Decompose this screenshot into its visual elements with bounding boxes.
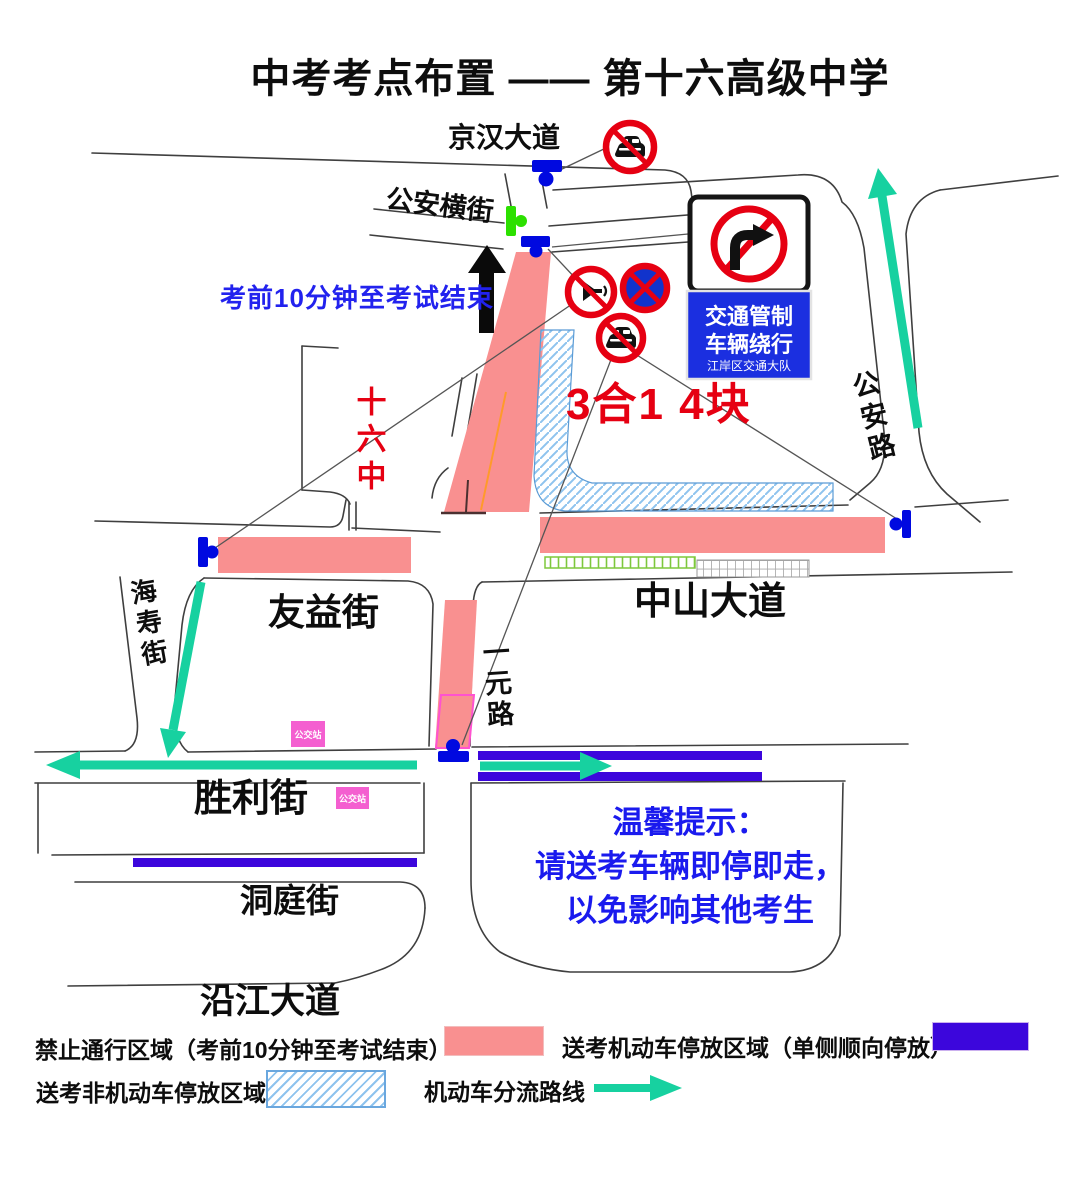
no-pass-zone-zhongshan [540, 517, 885, 553]
legend-motor-parking-swatch [932, 1022, 1029, 1051]
road-label-yiyuan: 一元路 [477, 637, 514, 732]
legend-non-motor-label: 送考非机动车停放区域 [36, 1074, 266, 1108]
traffic-light-gonganheng-green [506, 206, 527, 236]
no-pass-zone-youyi [218, 537, 411, 573]
road-label-shengli: 胜利街 [194, 778, 308, 822]
diversion-arrow-haishou [160, 582, 201, 758]
legend-diversion-label: 机动车分流路线 [424, 1073, 585, 1107]
no-horn-sign [568, 269, 614, 315]
traffic-light-jinghan [532, 160, 562, 187]
detour-board-line3: 江岸区交通大队 [687, 357, 811, 374]
bus-lane-strip [545, 557, 695, 568]
exam-traffic-map: 中考考点布置 —— 第十六高级中学 京汉大道 公安横街 考前10分钟至考试结束 … [0, 0, 1080, 1184]
no-stopping-sign [623, 266, 667, 310]
traffic-light-youyi [198, 537, 219, 567]
bus-stop-badge-shengli: 公交站 [336, 787, 369, 809]
no-vehicles-sign-top [606, 123, 654, 171]
no-vehicles-sign-lower [599, 316, 643, 360]
crosswalk-grid-strip [697, 560, 809, 577]
legend-no-pass-swatch [444, 1026, 544, 1056]
notice-line2: 以免影响其他考生 [480, 889, 900, 933]
restriction-period-label: 考前10分钟至考试结束 [220, 284, 494, 314]
road-label-zhongshan: 中山大道 [634, 581, 786, 625]
detour-board-line2: 车辆绕行 [687, 327, 811, 359]
road-label-youyi: 友益街 [268, 592, 379, 635]
bus-stop-badge-yiyuan: 公交站 [291, 721, 325, 747]
legend-no-pass-label: 禁止通行区域（考前10分钟至考试结束） [35, 1031, 452, 1065]
road-label-jinghan: 京汉大道 [448, 122, 560, 154]
sign-count-note: 3合1 4块 [566, 380, 752, 431]
notice-line1: 请送考车辆即停即走， [480, 845, 900, 889]
page-title: 中考考点布置 —— 第十六高级中学 [130, 56, 1010, 102]
legend-motor-parking-label: 送考机动车停放区域（单侧顺向停放） [562, 1029, 953, 1063]
traffic-light-zhongshan-east [890, 510, 912, 538]
notice-block: 温馨提示： 请送考车辆即停即走， 以免影响其他考生 [480, 801, 900, 933]
school-label: 十六中 [350, 386, 385, 497]
road-label-dongting: 洞庭街 [240, 882, 339, 920]
notice-title: 温馨提示： [480, 801, 900, 845]
legend-non-motor-swatch [266, 1070, 386, 1108]
diversion-arrow-shengli-west [46, 751, 417, 779]
map-canvas [0, 0, 1080, 1184]
no-right-turn-sign [690, 197, 808, 291]
legend-diversion-arrow [594, 1075, 682, 1101]
road-label-yanjiang: 沿江大道 [200, 982, 340, 1022]
